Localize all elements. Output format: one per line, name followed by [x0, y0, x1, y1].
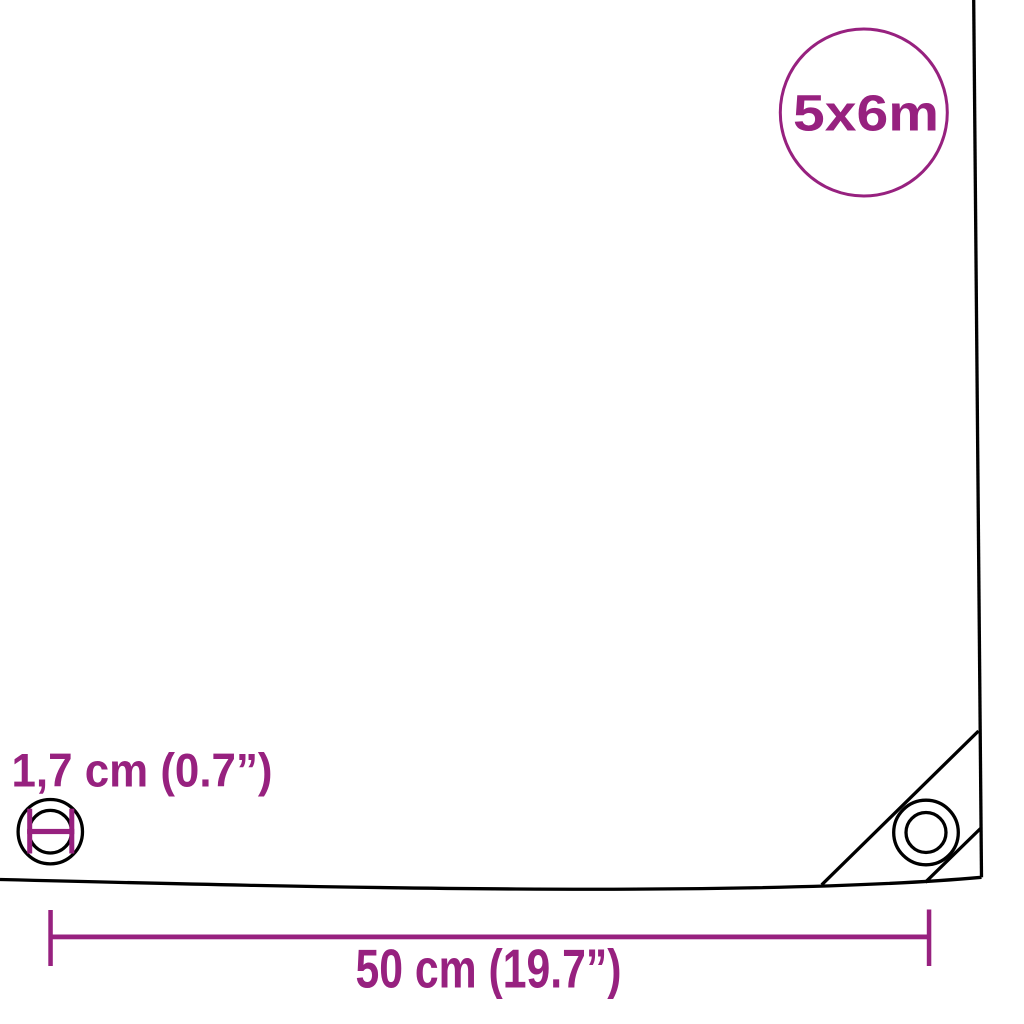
svg-text:50 cm (19.7”): 50 cm (19.7”) [356, 939, 622, 1000]
svg-text:1,7 cm (0.7”): 1,7 cm (0.7”) [12, 745, 273, 798]
svg-text:5x6m: 5x6m [793, 84, 939, 141]
